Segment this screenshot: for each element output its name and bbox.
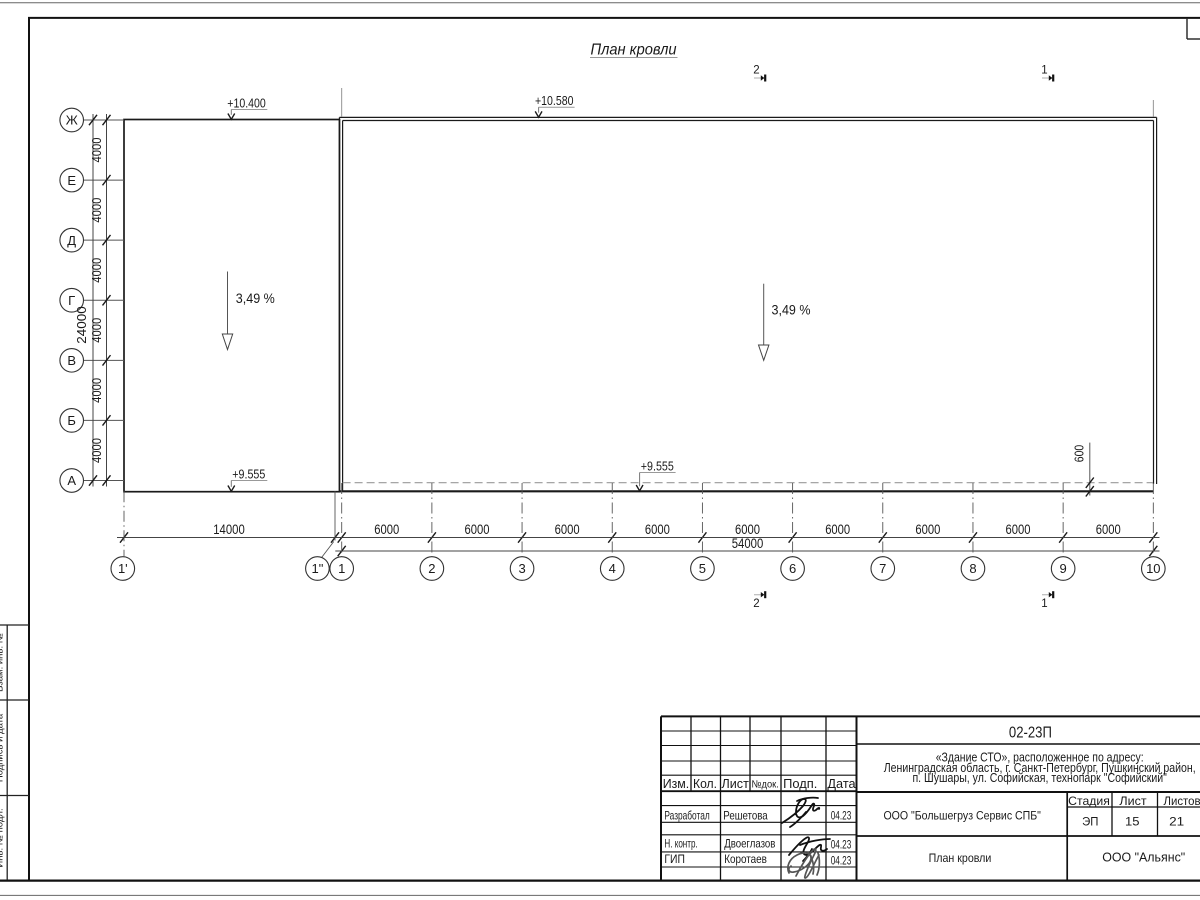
- svg-text:План кровли: План кровли: [929, 852, 992, 865]
- svg-text:7: 7: [879, 561, 886, 576]
- svg-text:15: 15: [1125, 816, 1140, 829]
- svg-text:Д: Д: [67, 233, 76, 248]
- svg-text:Б: Б: [67, 413, 76, 428]
- svg-text:6000: 6000: [735, 522, 760, 537]
- svg-text:6000: 6000: [555, 522, 580, 537]
- svg-text:24000: 24000: [74, 306, 89, 344]
- svg-text:1: 1: [1041, 65, 1047, 77]
- svg-text:5: 5: [699, 561, 706, 576]
- svg-text:21: 21: [1169, 816, 1184, 829]
- svg-text:4000: 4000: [89, 318, 104, 343]
- svg-text:ГИП: ГИП: [664, 853, 685, 866]
- svg-text:14000: 14000: [213, 522, 245, 537]
- svg-text:04.23: 04.23: [831, 809, 852, 822]
- svg-text:04.23: 04.23: [831, 839, 852, 852]
- svg-text:2: 2: [753, 65, 759, 77]
- svg-text:6000: 6000: [915, 522, 940, 537]
- svg-text:Кол.: Кол.: [693, 776, 717, 791]
- svg-text:2: 2: [428, 561, 435, 576]
- svg-text:Н. контр.: Н. контр.: [664, 838, 697, 851]
- svg-text:6000: 6000: [645, 522, 670, 537]
- svg-text:Е: Е: [67, 173, 76, 188]
- svg-text:Лист: Лист: [722, 776, 749, 791]
- svg-text:+9.555: +9.555: [232, 467, 265, 481]
- svg-text:6000: 6000: [1006, 522, 1031, 537]
- svg-text:6000: 6000: [464, 522, 489, 537]
- svg-text:ЭП: ЭП: [1082, 816, 1098, 829]
- svg-text:Ж: Ж: [66, 113, 78, 128]
- svg-text:+10.580: +10.580: [535, 94, 574, 108]
- svg-text:8: 8: [969, 561, 976, 576]
- svg-text:6000: 6000: [374, 522, 399, 537]
- svg-text:Разработал: Разработал: [664, 809, 709, 822]
- svg-text:+9.555: +9.555: [641, 459, 674, 473]
- svg-text:Двоеглазов: Двоеглазов: [724, 838, 775, 851]
- svg-text:9: 9: [1060, 561, 1067, 576]
- svg-text:Дата: Дата: [827, 776, 856, 791]
- svg-text:+10.400: +10.400: [227, 96, 266, 110]
- svg-text:4000: 4000: [89, 438, 104, 463]
- svg-text:Изм.: Изм.: [663, 776, 690, 791]
- svg-text:Подп.: Подп.: [783, 776, 817, 791]
- svg-text:Подпись и дата: Подпись и дата: [0, 713, 6, 782]
- svg-text:54000: 54000: [732, 536, 764, 551]
- svg-text:ООО "Большегруз Сервис СПБ": ООО "Большегруз Сервис СПБ": [883, 810, 1041, 823]
- svg-text:6000: 6000: [1096, 522, 1121, 537]
- svg-text:Листов: Листов: [1164, 795, 1200, 808]
- svg-text:2: 2: [753, 598, 759, 610]
- svg-text:Г: Г: [68, 293, 75, 308]
- svg-text:1': 1': [118, 561, 128, 576]
- svg-text:Лист: Лист: [1119, 795, 1147, 808]
- svg-text:4: 4: [609, 561, 616, 576]
- svg-text:4000: 4000: [89, 378, 104, 403]
- svg-text:Коротаев: Коротаев: [724, 853, 767, 866]
- svg-text:Взам. инв. №: Взам. инв. №: [0, 633, 6, 692]
- svg-text:3,49 %: 3,49 %: [236, 290, 275, 306]
- svg-text:600: 600: [1072, 445, 1086, 463]
- svg-text:А: А: [67, 473, 76, 488]
- svg-text:Решетова: Решетова: [723, 809, 768, 822]
- svg-text:6000: 6000: [825, 522, 850, 537]
- svg-text:3,49 %: 3,49 %: [772, 302, 811, 318]
- svg-text:4000: 4000: [89, 258, 104, 283]
- svg-text:Стадия: Стадия: [1068, 795, 1110, 808]
- svg-text:3: 3: [518, 561, 525, 576]
- svg-text:План кровли: План кровли: [591, 42, 677, 59]
- svg-text:1": 1": [311, 561, 323, 576]
- svg-text:п. Шушары, ул. Софийская, техн: п. Шушары, ул. Софийская, технопарк "Соф…: [912, 771, 1167, 785]
- svg-text:ООО "Альянс": ООО "Альянс": [1102, 850, 1185, 864]
- svg-text:Инв. № подл.: Инв. № подл.: [0, 808, 6, 867]
- svg-text:1: 1: [338, 561, 345, 576]
- svg-text:4000: 4000: [89, 138, 104, 163]
- svg-text:6: 6: [789, 561, 796, 576]
- svg-text:№док.: №док.: [752, 778, 779, 790]
- svg-text:В: В: [67, 353, 76, 368]
- svg-text:02-23П: 02-23П: [1009, 725, 1052, 742]
- svg-text:4000: 4000: [89, 198, 104, 223]
- svg-text:04.23: 04.23: [831, 855, 852, 868]
- svg-text:1: 1: [1041, 598, 1047, 610]
- svg-text:10: 10: [1146, 561, 1160, 576]
